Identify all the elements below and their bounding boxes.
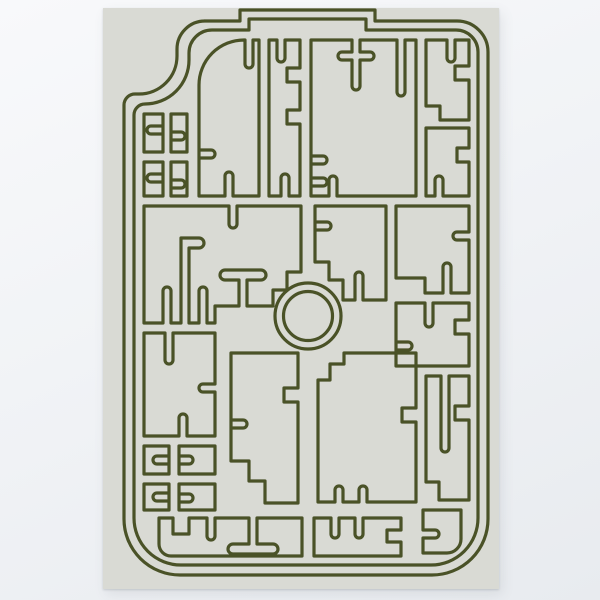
cell-right-upper	[396, 206, 469, 293]
cell-mid-right-of-center	[315, 206, 386, 300]
sprue-artwork	[103, 8, 499, 589]
cell-grid-c	[144, 484, 169, 510]
cell-top-right-lower	[426, 128, 469, 196]
cell-lower-left-tall	[231, 353, 298, 503]
cell-bottom-left-pedestal	[159, 518, 302, 556]
cell-shoulder-d	[171, 162, 187, 196]
cell-mid-left-lower	[144, 333, 215, 436]
cell-right-middle	[396, 303, 469, 366]
cell-grid-a	[144, 446, 169, 474]
poster-print	[103, 8, 499, 589]
cell-shoulder-b	[171, 114, 187, 152]
cell-top-large	[311, 40, 416, 196]
ring-inner-circle	[284, 292, 333, 341]
cell-bottom-right-hook	[423, 510, 461, 553]
cell-zigzag-column	[269, 40, 300, 196]
cell-shoulder-c	[144, 162, 163, 196]
cell-grid-d	[179, 484, 215, 510]
cell-grid-b	[179, 446, 215, 474]
cell-top-right-upper	[426, 40, 469, 120]
cell-lower-center-large	[318, 353, 416, 502]
cell-lower-right-spike	[426, 376, 469, 500]
wall-background	[0, 0, 600, 600]
cell-bottom-center-spikes	[314, 518, 401, 556]
cell-shoulder-a	[144, 114, 163, 152]
cell-arch-top-left	[199, 40, 259, 196]
